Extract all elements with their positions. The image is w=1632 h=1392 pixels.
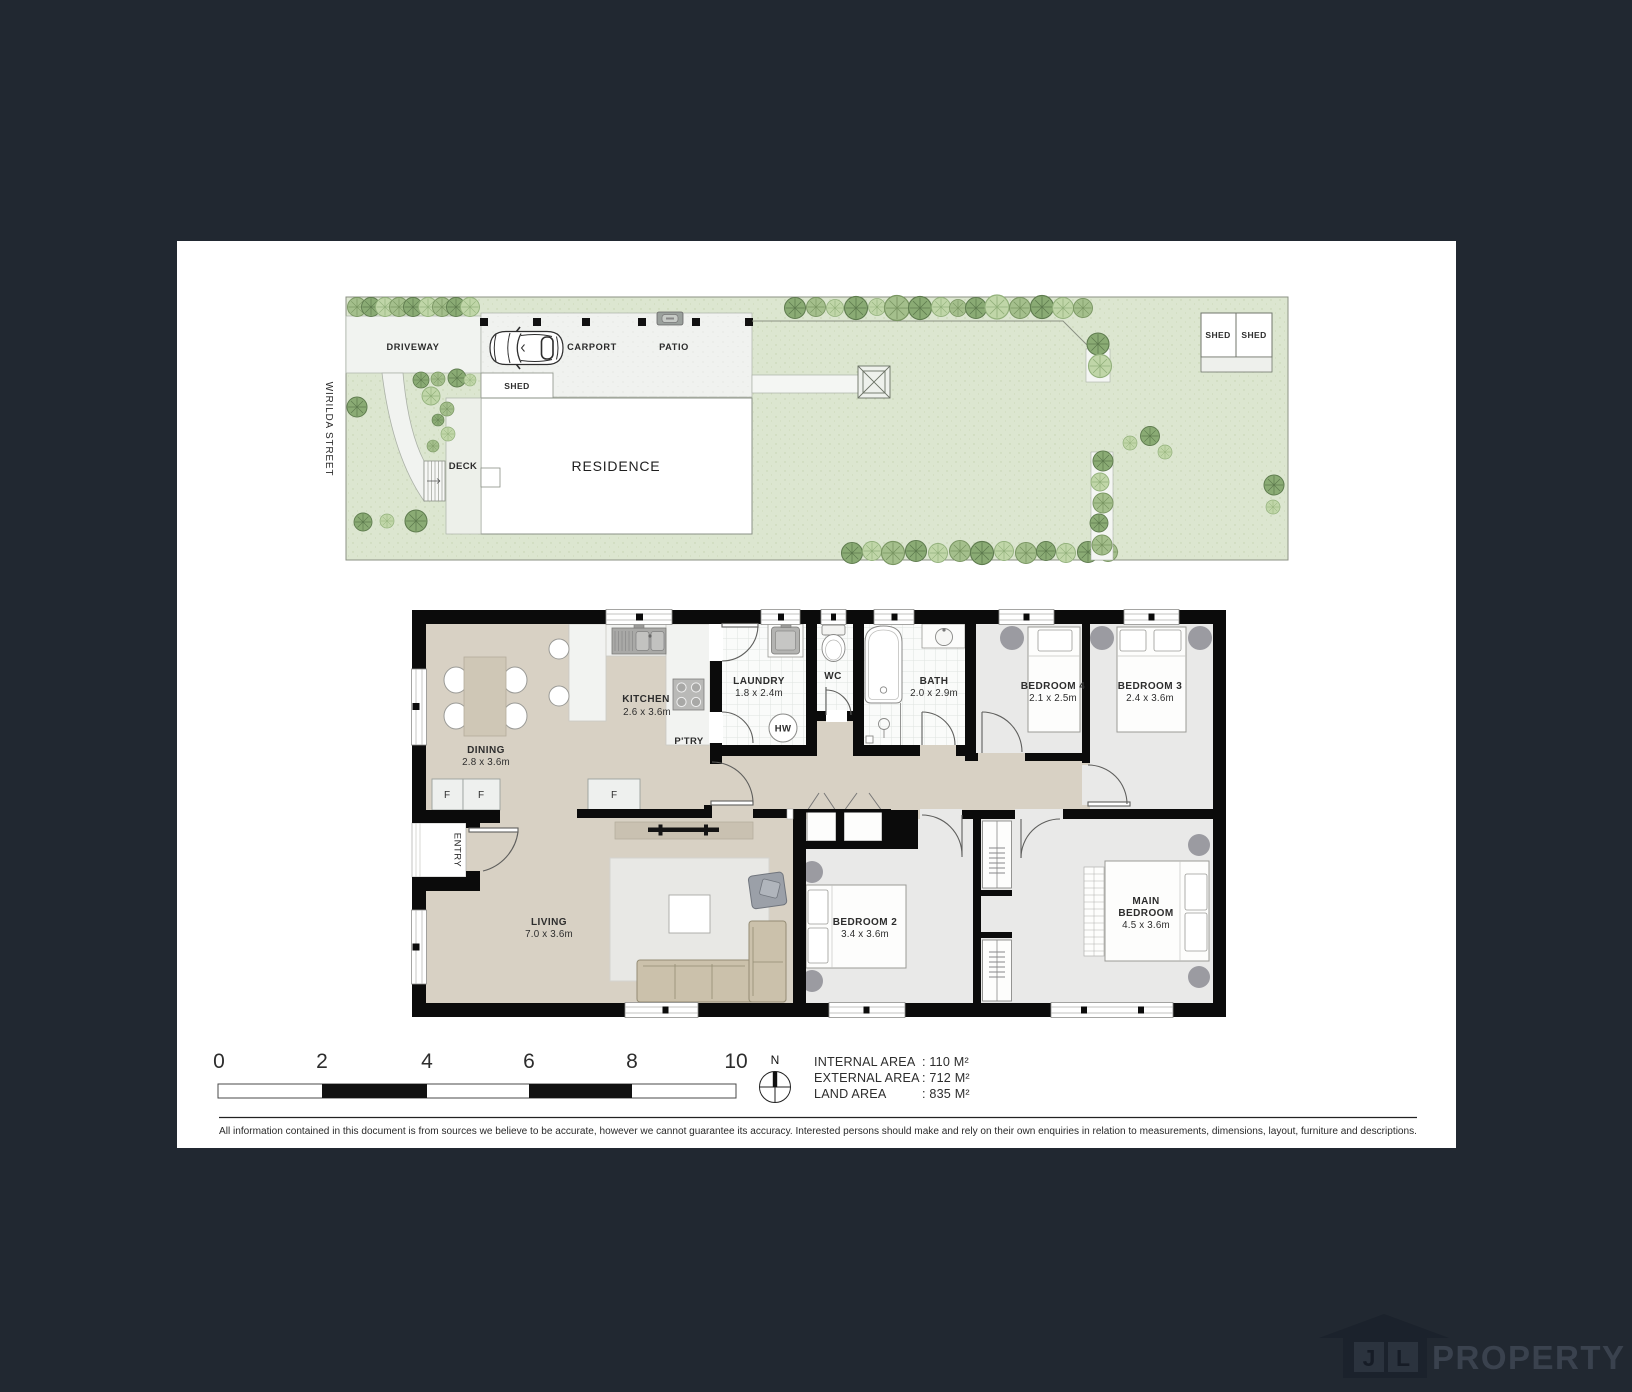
svg-text:8: 8 [626,1050,638,1073]
svg-text:L: L [1396,1345,1410,1371]
svg-text:0: 0 [213,1050,225,1073]
svg-text:ENTRY: ENTRY [451,833,462,868]
svg-text:7.0 x 3.6m: 7.0 x 3.6m [525,929,573,940]
svg-text:: 835 M²: : 835 M² [922,1087,970,1101]
svg-text:F: F [444,790,450,801]
svg-text:BEDROOM 4: BEDROOM 4 [1021,681,1086,692]
svg-text:PATIO: PATIO [659,342,689,352]
svg-text:DRIVEWAY: DRIVEWAY [387,342,440,352]
svg-text:LAUNDRY: LAUNDRY [733,676,785,687]
svg-text:SHED: SHED [1205,330,1230,340]
svg-text:BEDROOM 3: BEDROOM 3 [1118,681,1183,692]
svg-text:DECK: DECK [449,461,478,472]
svg-text:4.5 x 3.6m: 4.5 x 3.6m [1122,920,1170,931]
svg-text:LIVING: LIVING [531,917,567,928]
svg-text:SHED: SHED [504,381,530,391]
svg-text:LAND AREA: LAND AREA [814,1087,887,1101]
svg-text:1.8 x 2.4m: 1.8 x 2.4m [735,688,783,699]
svg-text:CARPORT: CARPORT [567,342,617,352]
svg-text:MAIN: MAIN [1132,896,1159,907]
svg-text:2: 2 [316,1050,328,1073]
svg-text:F: F [478,790,484,801]
svg-text:KITCHEN: KITCHEN [622,694,670,705]
svg-text:2.4 x 3.6m: 2.4 x 3.6m [1126,693,1174,704]
svg-text:: 712 M²: : 712 M² [922,1071,970,1085]
svg-text:DINING: DINING [467,745,505,756]
svg-text:HW: HW [775,724,791,735]
svg-text:BEDROOM 2: BEDROOM 2 [833,917,898,928]
svg-text:N: N [771,1053,780,1067]
svg-text:3.4 x 3.6m: 3.4 x 3.6m [841,929,889,940]
svg-text:F: F [611,790,617,801]
svg-text:4: 4 [421,1050,433,1073]
svg-text:WIRILDA STREET: WIRILDA STREET [323,382,334,477]
svg-text:2.8 x 3.6m: 2.8 x 3.6m [462,757,510,768]
svg-text:EXTERNAL AREA: EXTERNAL AREA [814,1071,920,1085]
svg-text:BEDROOM: BEDROOM [1118,908,1173,919]
svg-text:All information contained in t: All information contained in this docume… [219,1126,1417,1137]
svg-text:BATH: BATH [920,676,949,687]
svg-text:SHED: SHED [1241,330,1266,340]
svg-text:2.6 x 3.6m: 2.6 x 3.6m [623,707,671,718]
svg-text:RESIDENCE: RESIDENCE [572,458,661,474]
svg-text:WC: WC [824,671,842,682]
svg-text:J: J [1363,1345,1376,1371]
svg-text:: 110 M²: : 110 M² [922,1055,969,1069]
svg-text:P'TRY: P'TRY [674,736,704,747]
svg-text:PROPERTY: PROPERTY [1432,1339,1626,1376]
svg-text:2.1 x 2.5m: 2.1 x 2.5m [1029,693,1077,704]
svg-text:INTERNAL AREA: INTERNAL AREA [814,1055,916,1069]
svg-text:10: 10 [724,1050,747,1073]
svg-text:2.0 x 2.9m: 2.0 x 2.9m [910,688,958,699]
svg-text:6: 6 [523,1050,535,1073]
